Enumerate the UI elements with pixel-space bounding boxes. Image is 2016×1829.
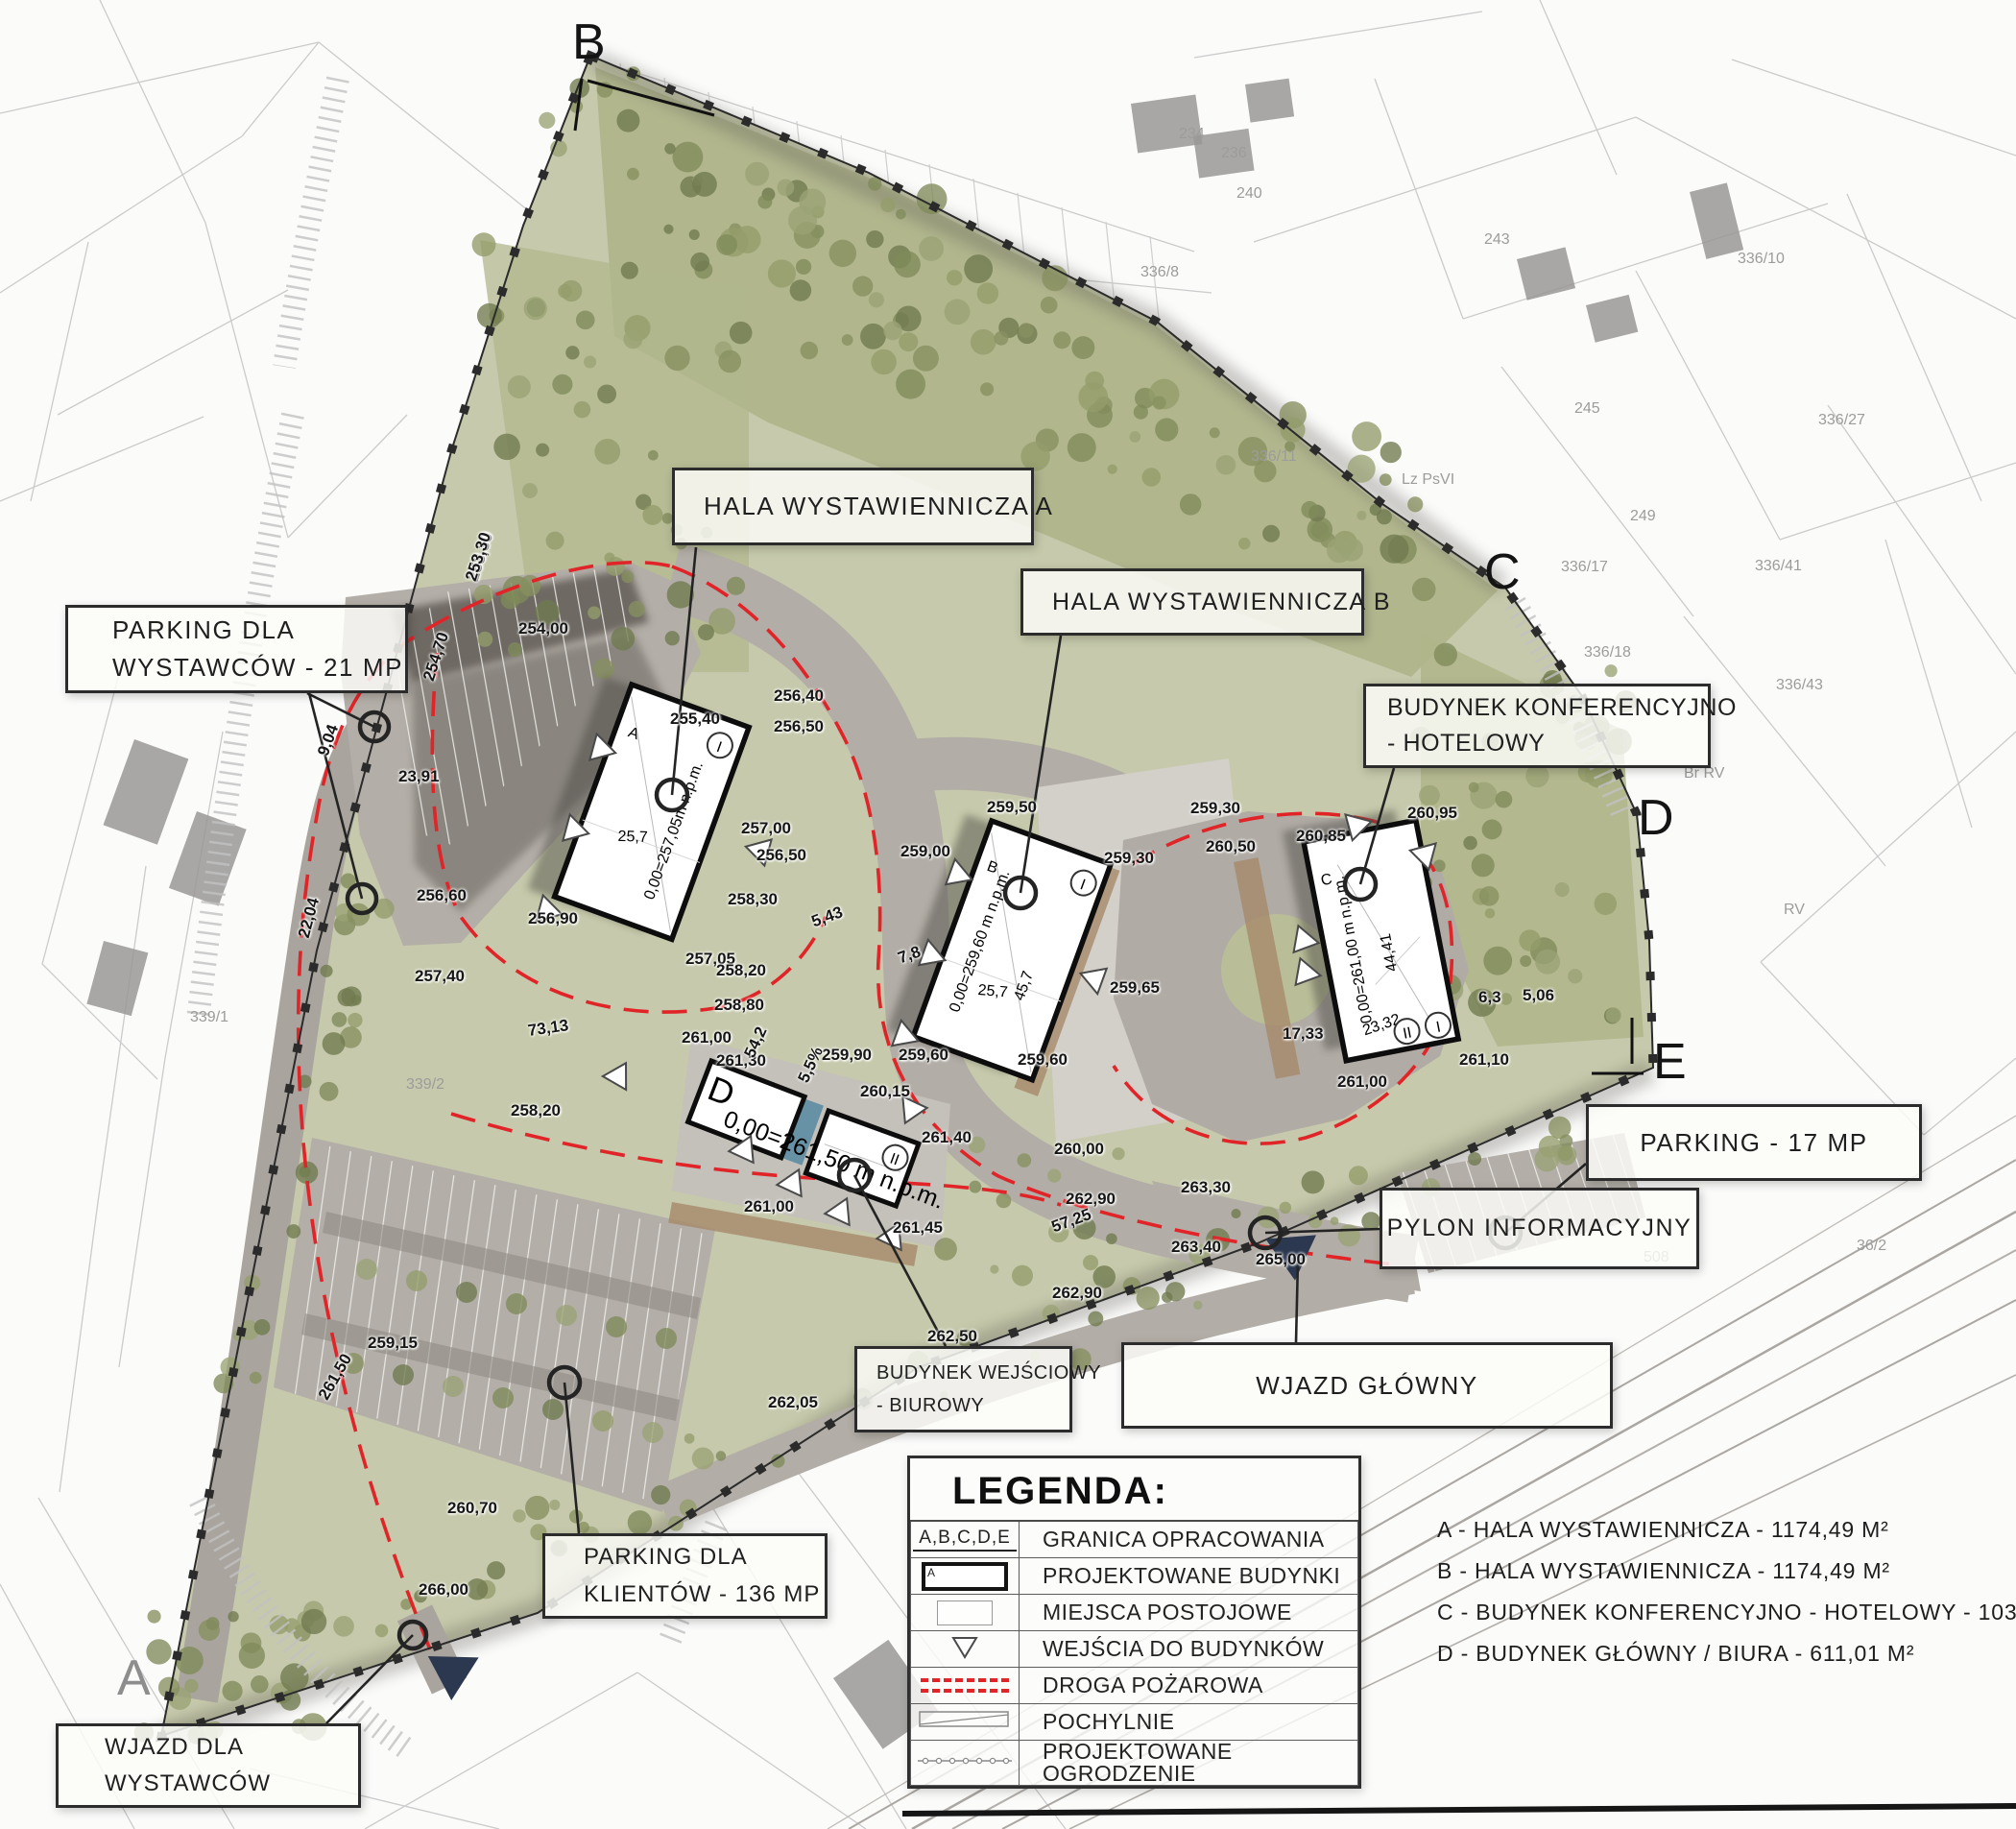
callout-pylon-text: PYLON INFORMACYJNY <box>1387 1210 1692 1247</box>
callout-wjazd-glowny: WJAZD GŁÓWNY <box>1121 1342 1613 1429</box>
callout-konferencyjny: BUDYNEK KONFERENCYJNO - HOTELOWY <box>1363 684 1711 768</box>
callout-konferencyjny-line2: - HOTELOWY <box>1387 726 1696 762</box>
area-line-a: A - HALA WYSTAWIENNICZA - 1174,49 M² <box>1437 1509 2016 1551</box>
legend-row-ramps: POCHYLNIE <box>911 1704 1358 1741</box>
legend-title: LEGENDA: <box>910 1458 1358 1520</box>
legend-row-entrances: WEJŚCIA DO BUDYNKÓW <box>911 1631 1358 1668</box>
callout-hala-a: HALA WYSTAWIENNICZA A <box>672 468 1034 545</box>
fire-road-symbol <box>921 1678 1009 1693</box>
callout-wejsciowy-line1: BUDYNEK WEJŚCIOWY <box>876 1357 1058 1389</box>
legend-row-fire-road: DROGA POŻAROWA <box>911 1668 1358 1704</box>
site-plan-canvas: A 0,00=257,05m n.p.m. 25,7 I B 0,00=259,… <box>0 0 2016 1829</box>
callout-parking-klientow: PARKING DLA KLIENTÓW - 136 MP <box>542 1533 828 1619</box>
legend-row-buildings: A PROJEKTOWANE BUDYNKI <box>911 1558 1358 1595</box>
legend-label-entrances: WEJŚCIA DO BUDYNKÓW <box>1020 1631 1358 1668</box>
legend-label-ramps: POCHYLNIE <box>1020 1704 1358 1741</box>
building-outline-symbol: A <box>922 1562 1008 1591</box>
building-b-dim-1: 25,7 <box>977 982 1009 1001</box>
legend-row-boundary: A,B,C,D,E GRANICA OPRACOWANIA <box>911 1521 1358 1558</box>
legend: LEGENDA: A,B,C,D,E GRANICA OPRACOWANIA A… <box>907 1456 1361 1789</box>
callout-parking-17: PARKING - 17 MP <box>1586 1104 1922 1181</box>
base-road-line <box>902 1806 2016 1814</box>
callout-parking-17-text: PARKING - 17 MP <box>1640 1123 1867 1162</box>
legend-row-fence: PROJEKTOWANE OGRODZENIE <box>911 1741 1358 1786</box>
entrance-triangle-symbol <box>950 1633 979 1660</box>
callout-konferencyjny-line1: BUDYNEK KONFERENCYJNO <box>1387 690 1696 727</box>
parking-stall-symbol <box>937 1600 993 1625</box>
callout-parking-wystawcow-line1: PARKING DLA <box>112 612 394 649</box>
callout-wjazd-wystawcow: WJAZD DLA WYSTAWCÓW <box>56 1723 361 1808</box>
callout-hala-b-text: HALA WYSTAWIENNICZA B <box>1052 584 1350 621</box>
fence-symbol <box>918 1752 1012 1769</box>
callout-hala-a-text: HALA WYSTAWIENNICZA A <box>704 487 1020 525</box>
area-line-b: B - HALA WYSTAWIENNICZA - 1174,49 M² <box>1437 1551 2016 1592</box>
legend-label-boundary: GRANICA OPRACOWANIA <box>1020 1521 1358 1558</box>
area-line-c: C - BUDYNEK KONFERENCYJNO - HOTELOWY - 1… <box>1437 1592 2016 1633</box>
callout-parking-klientow-line1: PARKING DLA <box>584 1539 813 1576</box>
legend-row-parking: MIEJSCA POSTOJOWE <box>911 1595 1358 1631</box>
legend-label-fence: PROJEKTOWANE OGRODZENIE <box>1020 1741 1358 1786</box>
callout-wjazd-glowny-text: WJAZD GŁÓWNY <box>1256 1366 1478 1405</box>
callout-wjazd-wystawcow-line1: WJAZD DLA <box>105 1729 347 1766</box>
callout-parking-klientow-line2: KLIENTÓW - 136 MP <box>584 1576 813 1613</box>
callout-wjazd-wystawcow-line2: WYSTAWCÓW <box>105 1766 347 1802</box>
callout-pylon: PYLON INFORMACYJNY <box>1380 1188 1699 1269</box>
callout-parking-wystawcow: PARKING DLA WYSTAWCÓW - 21 MP <box>65 605 408 693</box>
ramp-symbol <box>918 1709 1012 1730</box>
legend-label-parking: MIEJSCA POSTOJOWE <box>1020 1595 1358 1631</box>
callout-hala-b: HALA WYSTAWIENNICZA B <box>1020 568 1364 636</box>
callout-wejsciowy-line2: - BIUROWY <box>876 1389 1058 1422</box>
building-a-dim: 25,7 <box>617 829 648 846</box>
legend-table: A,B,C,D,E GRANICA OPRACOWANIA A PROJEKTO… <box>910 1520 1358 1786</box>
legend-label-fire-road: DROGA POŻAROWA <box>1020 1668 1358 1704</box>
building-outline-symbol-letter: A <box>927 1567 935 1578</box>
callout-parking-wystawcow-line2: WYSTAWCÓW - 21 MP <box>112 649 394 686</box>
area-line-d: D - BUDYNEK GŁÓWNY / BIURA - 611,01 M² <box>1437 1633 2016 1674</box>
building-areas-list: A - HALA WYSTAWIENNICZA - 1174,49 M² B -… <box>1437 1509 2016 1674</box>
boundary-letters-symbol: A,B,C,D,E <box>913 1528 1017 1552</box>
legend-label-buildings: PROJEKTOWANE BUDYNKI <box>1020 1558 1358 1595</box>
callout-wejsciowy: BUDYNEK WEJŚCIOWY - BIUROWY <box>854 1346 1072 1432</box>
